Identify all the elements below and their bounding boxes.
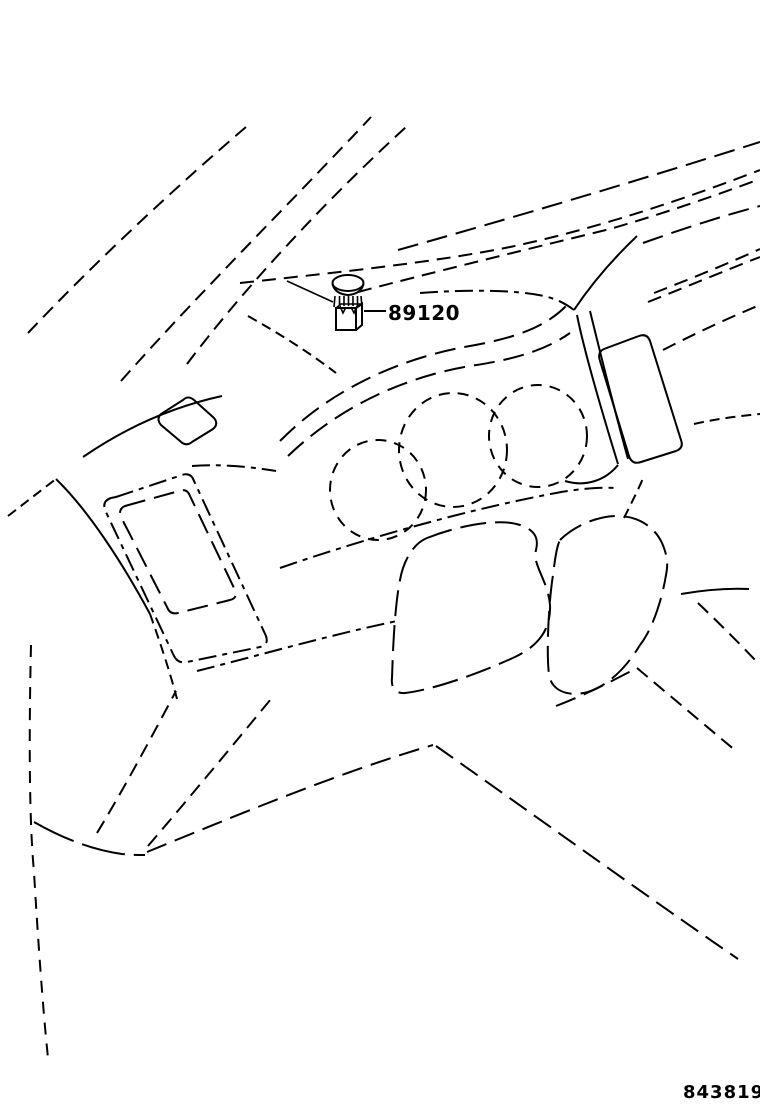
lower-left-diagonal-a [97, 691, 176, 833]
windshield-lines [240, 142, 760, 302]
cowl-descent-curve [574, 236, 637, 310]
right-vent-area [599, 305, 760, 662]
dash-top-and-hood [248, 236, 637, 483]
lower-left-horizontal [34, 822, 145, 855]
door-edge-vertical [30, 645, 48, 1058]
right-lower-diagonal [698, 603, 757, 662]
a-pillar-line-inner [187, 127, 406, 364]
gauge-right [489, 385, 587, 487]
a-pillar-line-outer [28, 127, 246, 333]
right-of-vent-line [663, 305, 760, 350]
gauge-left [330, 440, 426, 540]
seam-above-left-vent [192, 465, 276, 471]
dash-top-right-line-a [648, 257, 760, 302]
cluster-channel-bottom [565, 465, 618, 483]
dash-left-outer-edge-dashed [150, 614, 177, 699]
instrument-gauges [330, 385, 587, 540]
right-edge-line [694, 414, 760, 424]
part-dome-cap [333, 275, 364, 291]
part-collar-left [334, 296, 335, 307]
cluster-hood-inner [288, 333, 570, 456]
dash-bottom-edge-right [436, 746, 738, 959]
callout-leaders [287, 281, 386, 311]
column-shroud-right [548, 516, 667, 694]
steering-column [392, 476, 736, 751]
dash-bottom-edge-left [147, 745, 433, 852]
left-dash-and-vents [8, 396, 276, 699]
figure-number-label: 843819 [683, 1082, 760, 1103]
cluster-hood-outer [280, 305, 567, 441]
lower-left-panel [30, 645, 738, 1058]
a-pillar-lines [28, 117, 406, 381]
part-number-label[interactable]: 89120 [388, 301, 460, 325]
leader-line-left [287, 281, 333, 302]
lower-right-diagonal [637, 668, 736, 751]
hood-upper-left-edge [248, 316, 336, 373]
dash-left-outer-edge [56, 479, 150, 614]
dashboard-line-illustration: 89120 843819 [0, 0, 760, 1112]
cowl-line-dashed [643, 206, 760, 243]
parts-diagram-canvas: 89120 843819 [0, 0, 760, 1112]
dash-top-right-line-b [654, 249, 760, 293]
windshield-line-top [398, 142, 760, 250]
left-vent-inner-bezel [120, 490, 236, 613]
lower-dash-seam [197, 621, 397, 671]
defroster-line-upper [240, 170, 760, 283]
left-vent-outer-bezel [104, 474, 267, 662]
part-89120-icon[interactable] [333, 275, 364, 330]
right-lower-curve [681, 589, 749, 594]
a-pillar-line-middle [121, 117, 371, 381]
lower-left-diagonal-b [148, 699, 271, 846]
column-to-vent-line [624, 476, 644, 518]
knee-bolster-line [556, 668, 637, 706]
column-shroud-left [392, 522, 550, 693]
dash-left-corner-dash [8, 479, 56, 516]
